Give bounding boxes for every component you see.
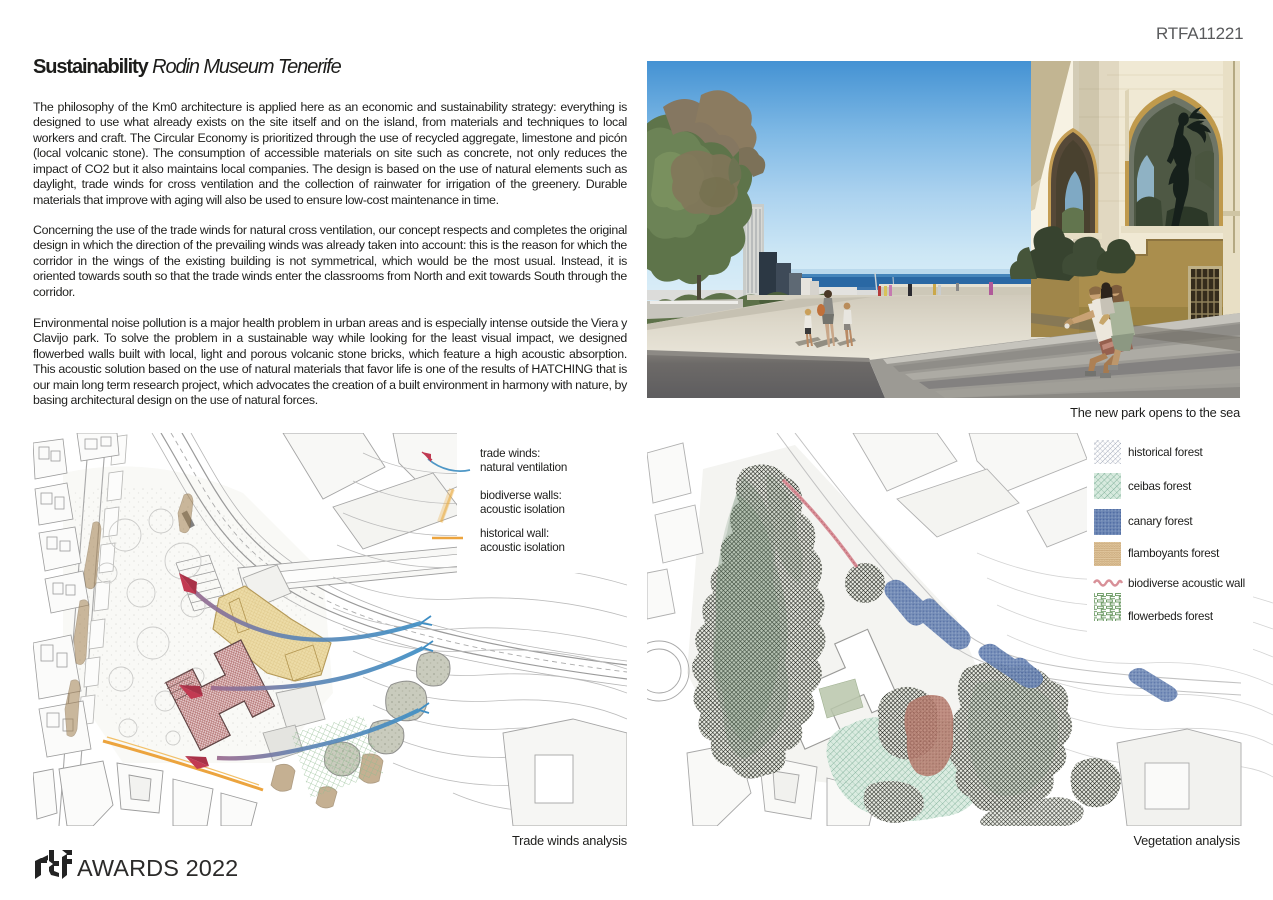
svg-text:ceibas forest: ceibas forest [1128,480,1192,493]
svg-text:flamboyants forest: flamboyants forest [1128,547,1220,560]
svg-text:trade winds:: trade winds: [480,447,540,460]
svg-text:biodiverse walls:: biodiverse walls: [480,489,562,502]
svg-text:biodiverse acoustic wall: biodiverse acoustic wall [1128,577,1245,590]
svg-text:natural ventilation: natural ventilation [480,461,567,474]
svg-text:historical wall:: historical wall: [480,527,549,540]
svg-text:flowerbeds forest: flowerbeds forest [1128,610,1214,623]
svg-text:acoustic isolation: acoustic isolation [480,541,565,554]
svg-text:canary forest: canary forest [1128,515,1193,528]
svg-text:historical forest: historical forest [1128,446,1204,459]
svg-text:acoustic isolation: acoustic isolation [480,503,565,516]
